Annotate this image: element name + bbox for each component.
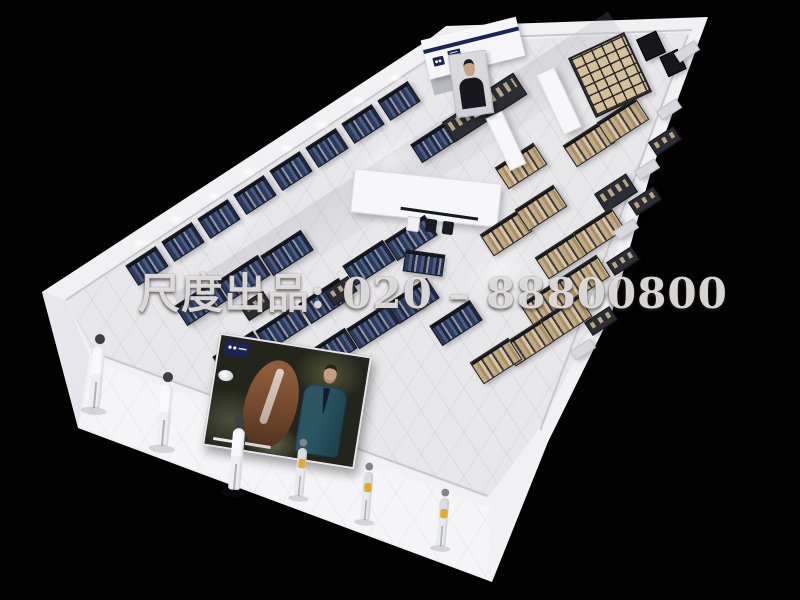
model-head <box>462 58 475 76</box>
mannequin-body <box>294 448 308 497</box>
tshirt-black <box>425 218 438 232</box>
mannequin-head <box>163 372 174 383</box>
spotlight <box>202 189 224 203</box>
mirror-prop <box>217 369 234 382</box>
brand-logo-icon <box>223 340 249 359</box>
mannequin-body <box>360 472 374 521</box>
spotlight <box>347 94 369 108</box>
tshirt-white <box>406 216 421 233</box>
mannequin-body <box>88 346 105 409</box>
spotlight <box>165 212 187 226</box>
spotlight <box>275 141 297 155</box>
brand-logo-icon <box>432 55 445 66</box>
model-head <box>322 363 338 384</box>
spotlight <box>311 118 333 132</box>
mannequin-head <box>95 334 106 345</box>
watermark-text: 尺度出品: 020 – 88800800 <box>138 260 678 321</box>
mannequin-body <box>228 428 245 491</box>
mannequin-head <box>299 438 307 446</box>
store-render-scene: 尺度出品: 020 – 88800800 <box>0 0 800 600</box>
mannequin-head <box>365 462 373 470</box>
mannequin-head <box>235 416 246 427</box>
mannequin-body <box>156 384 173 447</box>
spotlight <box>238 165 260 179</box>
yellow-outfit-accent <box>440 509 448 519</box>
model-torso <box>458 76 486 109</box>
tshirt-black <box>442 221 455 235</box>
sign-stripe <box>423 26 519 54</box>
mannequin-body <box>436 498 450 547</box>
yellow-outfit-accent <box>364 483 372 493</box>
yellow-outfit-accent <box>298 459 306 469</box>
mannequin-head <box>441 488 449 496</box>
spotlight <box>129 236 151 250</box>
